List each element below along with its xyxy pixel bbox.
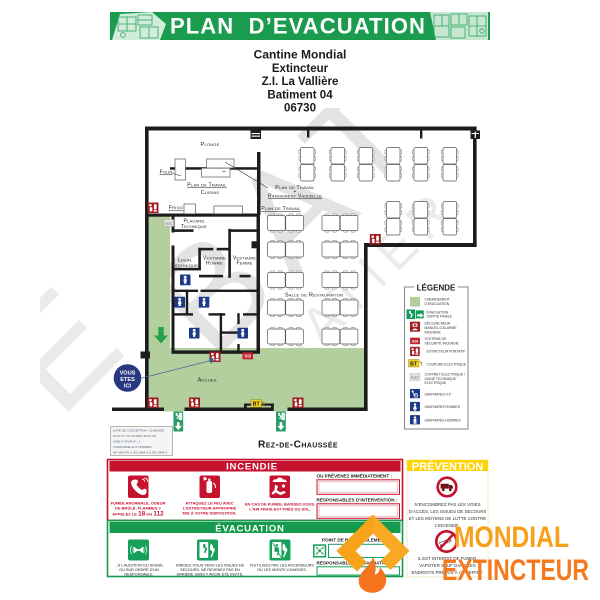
svg-text:INCENDIE: INCENDIE: [226, 462, 278, 473]
svg-text:Technique: Technique: [181, 224, 207, 230]
svg-text:...À L’AUDITION DU SIGNAL: ...À L’AUDITION DU SIGNAL: [114, 564, 163, 568]
svg-text:NF X08-070 & ISO 3864-1 & ISO: NF X08-070 & ISO 3864-1 & ISO 3864-2: [113, 451, 167, 455]
svg-text:ETES: ETES: [120, 377, 135, 383]
svg-text:DÉCLENCHEUR: DÉCLENCHEUR: [425, 321, 451, 326]
svg-text:N’ENCOMBREZ PAS LES VOIES: N’ENCOMBREZ PAS LES VOIES: [414, 502, 480, 507]
svg-text:INCENDIE: INCENDIE: [425, 330, 442, 334]
svg-text:OU LES MONTE-CHARGES.: OU LES MONTE-CHARGES.: [257, 568, 307, 572]
svg-text:COUPURE ÉLECTRIQUE: COUPURE ÉLECTRIQUE: [427, 361, 467, 366]
svg-text:L’AIR FRAIS EST PRÈS DU SOL.: L’AIR FRAIS EST PRÈS DU SOL.: [249, 507, 311, 512]
svg-text:Plonge: Plonge: [201, 142, 220, 148]
svg-text:DIRIGEZ-VOUS VERS LES ISSUES D: DIRIGEZ-VOUS VERS LES ISSUES DE: [176, 564, 245, 568]
svg-text:N’UTILISEZ PAS LES ASCENSEURS: N’UTILISEZ PAS LES ASCENSEURS: [250, 564, 314, 568]
svg-text:DATE DE CONCEPTION : 21/06/202: DATE DE CONCEPTION : 21/06/2020: [113, 429, 164, 433]
svg-text:SANITAIRES HOMMES: SANITAIRES HOMMES: [425, 418, 462, 422]
svg-text:Frigo: Frigo: [169, 205, 183, 211]
svg-text:MISE À JOUR N° : 1: MISE À JOUR N° : 1: [113, 440, 141, 444]
svg-text:ÉVACUATION: ÉVACUATION: [215, 523, 284, 534]
svg-text:SANITAIRES FEMMES: SANITAIRES FEMMES: [425, 405, 461, 409]
svg-text:OU PRÉVENEZ IMMÉDIATEMENT :: OU PRÉVENEZ IMMÉDIATEMENT :: [317, 472, 393, 479]
svg-text:LÉGENDE: LÉGENDE: [417, 284, 456, 293]
svg-text:Technique: Technique: [172, 263, 198, 269]
svg-text:VOUS: VOUS: [120, 370, 136, 376]
svg-text:Batiment 04: Batiment 04: [267, 89, 333, 101]
svg-text:PLAN D’EVACUATION: PLAN D’EVACUATION: [170, 14, 426, 39]
svg-text:ICI: ICI: [124, 383, 132, 389]
svg-text:RESPONSABLES D’INTERVENTION :: RESPONSABLES D’INTERVENTION :: [317, 498, 398, 503]
svg-text:Cantine Mondial: Cantine Mondial: [254, 48, 347, 62]
svg-text:PRÉVENTION: PRÉVENTION: [412, 460, 484, 473]
svg-text:Cuisine: Cuisine: [201, 190, 220, 196]
svg-text:SORTIE FINALE: SORTIE FINALE: [427, 315, 453, 319]
svg-text:COFFRET ÉLECTRIQUE /: COFFRET ÉLECTRIQUE /: [425, 372, 465, 377]
svg-text:Four: Four: [160, 170, 173, 176]
svg-text:EXTINCTEUR: EXTINCTEUR: [442, 554, 589, 587]
svg-text:Plan de Travail: Plan de Travail: [187, 183, 227, 189]
svg-text:Plan de Travail: Plan de Travail: [261, 206, 301, 212]
svg-text:ARRIÈRE SANS Y AVOIR ÉTÉ INVIT: ARRIÈRE SANS Y AVOIR ÉTÉ INVITÉ.: [177, 572, 244, 577]
svg-text:Accueil: Accueil: [198, 378, 218, 384]
svg-text:SANITAIRES H.P: SANITAIRES H.P: [425, 392, 452, 396]
svg-text:SÉCURITÉ INCENDIE: SÉCURITÉ INCENDIE: [425, 340, 460, 345]
svg-text:PLAN N° TO-CO7E01-4974-101: PLAN N° TO-CO7E01-4974-101: [113, 434, 156, 438]
svg-text:MONDIAL: MONDIAL: [454, 521, 569, 554]
svg-text:ÉLECTRIQUE: ÉLECTRIQUE: [425, 380, 447, 385]
svg-text:Extincteur: Extincteur: [272, 63, 329, 75]
svg-text:Salle de Restauration: Salle de Restauration: [285, 293, 343, 299]
svg-text:MIS À VOTRE DISPOSITION.: MIS À VOTRE DISPOSITION.: [182, 511, 236, 516]
svg-text:APPELEZ LE 18 OU 112: APPELEZ LE 18 OU 112: [112, 511, 164, 518]
svg-text:SECOURS, NE REVENEZ PAS EN: SECOURS, NE REVENEZ PAS EN: [180, 568, 240, 572]
svg-text:CONFORME AUX NORMES :: CONFORME AUX NORMES :: [113, 445, 153, 449]
svg-text:ÉVACUATION: ÉVACUATION: [427, 309, 449, 314]
svg-text:Homme: Homme: [206, 261, 223, 267]
svg-text:D’ACCÈS, LES ISSUES DE SECOURS: D’ACCÈS, LES ISSUES DE SECOURS: [409, 509, 487, 514]
svg-text:Z.I. La Vallière: Z.I. La Vallière: [262, 76, 339, 88]
svg-text:OU SUR ORDRE D’UN: OU SUR ORDRE D’UN: [119, 568, 159, 572]
svg-text:EXTINCTEUR PORTATIF: EXTINCTEUR PORTATIF: [427, 350, 466, 354]
svg-text:D’ÉVACUATION: D’ÉVACUATION: [425, 301, 450, 306]
svg-text:Rangement Vaisselle: Rangement Vaisselle: [268, 194, 322, 200]
svg-text:Femme: Femme: [236, 261, 252, 267]
svg-text:Rez-de-Chaussée: Rez-de-Chaussée: [258, 440, 338, 451]
svg-text:SYSTÈME DE: SYSTÈME DE: [425, 336, 448, 341]
svg-text:RESPONSABLE.: RESPONSABLE.: [124, 573, 153, 577]
